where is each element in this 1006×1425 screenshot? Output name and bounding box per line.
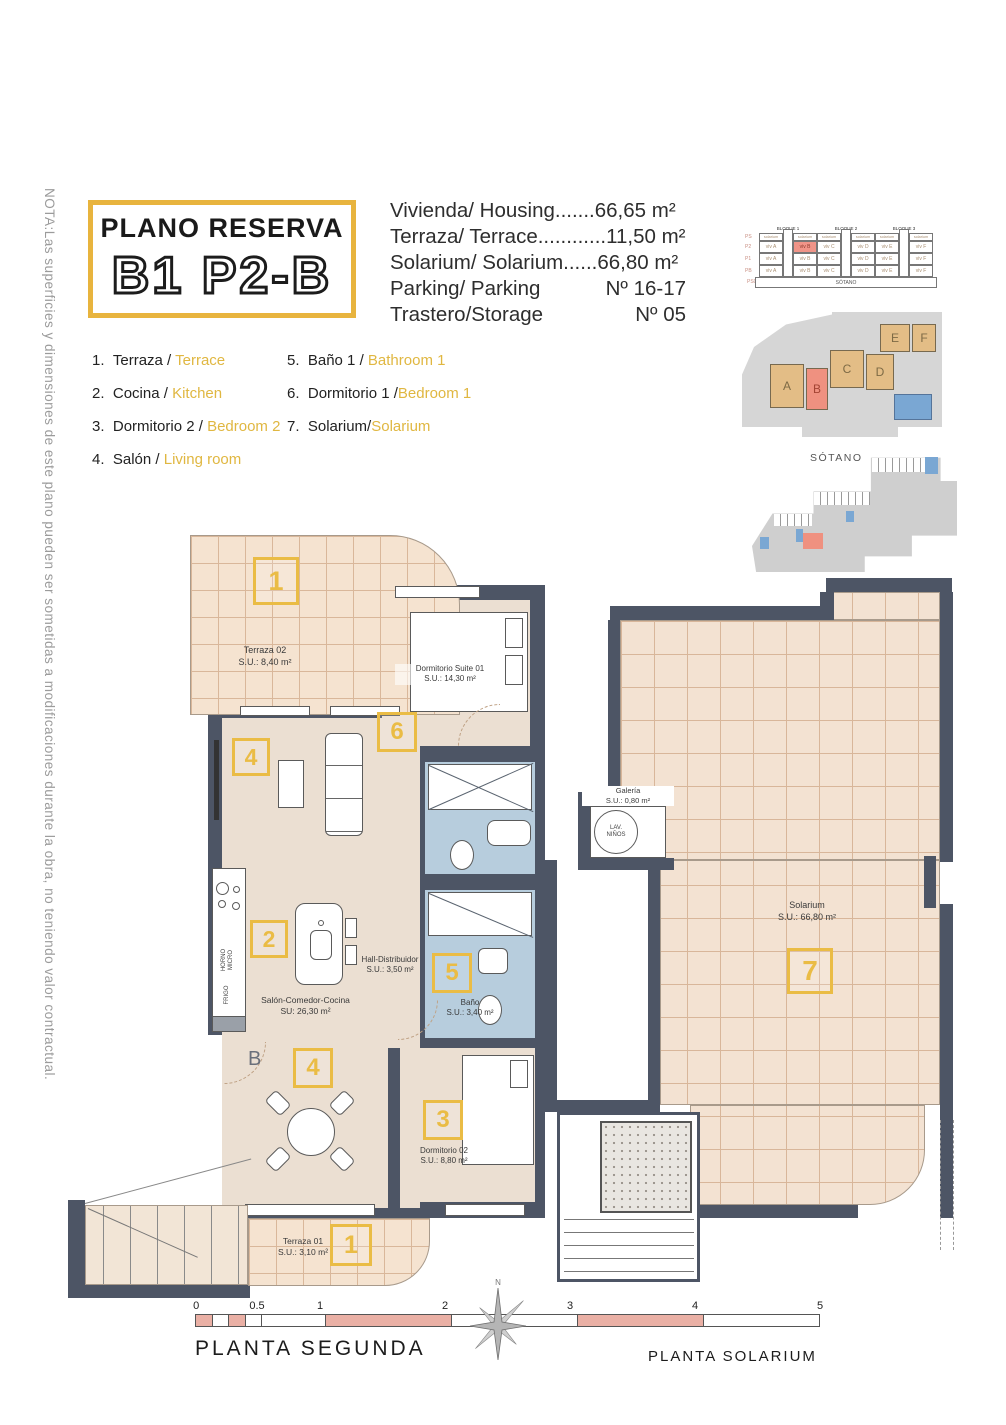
bathroom-sink <box>487 820 531 846</box>
wall <box>545 1100 660 1112</box>
floor-labels: PS P2 P1 PB <box>745 233 759 277</box>
window <box>445 1204 525 1216</box>
pillow <box>505 655 523 685</box>
legend-en: Bedroom 2 <box>207 418 280 435</box>
burner <box>218 900 226 908</box>
unit-column-b: solarium viv B viv B viv B <box>793 233 817 277</box>
section-cell: viv D <box>851 241 875 253</box>
bedroom2-label: Dormitorio 02S.U.: 8,80 m² <box>400 1146 488 1167</box>
building-a: A <box>770 364 804 408</box>
washer-label: LAV. <box>610 825 622 832</box>
title-block: PLANO RESERVA B1 P2-B <box>88 200 356 318</box>
dashed-boundary <box>940 1120 941 1250</box>
dashed-boundary <box>953 1120 954 1250</box>
room-area: S.U.: 3,40 m² <box>446 1008 493 1017</box>
spec-label: Solarium/ Solarium...... <box>390 250 597 276</box>
blue-spot <box>846 511 854 522</box>
spec-label: Vivienda/ Housing....... <box>390 198 595 224</box>
scale-segment <box>578 1315 704 1326</box>
tv-unit <box>214 740 219 820</box>
stair-tower <box>841 229 851 277</box>
wall <box>688 1205 858 1218</box>
room-number-kitchen: 2 <box>250 920 288 958</box>
section-cell: viv C <box>817 253 841 265</box>
door-leaf <box>924 856 936 908</box>
floor-label: P2 <box>745 241 759 253</box>
scale-tick: 1 <box>317 1300 323 1312</box>
legend-num: 2. <box>92 385 105 402</box>
sofa <box>325 733 363 836</box>
spec-label: Trastero/Storage <box>390 302 543 328</box>
stairwell <box>557 1112 700 1282</box>
solarium-plan-title: PLANTA SOLARIUM <box>648 1348 817 1365</box>
window <box>395 586 480 598</box>
legend-es: Cocina / <box>113 385 172 402</box>
solarium-label: SolariumS.U.: 66,80 m² <box>752 900 862 923</box>
shower-line <box>429 765 534 812</box>
unit-column-d: solarium viv D viv D viv D <box>851 233 875 277</box>
coffee-table <box>278 760 304 808</box>
section-cell: viv D <box>851 265 875 277</box>
room-area: S.U.: 3,50 m² <box>366 965 413 974</box>
section-cell: solarium <box>875 233 899 241</box>
room-name: Terraza 02 <box>244 645 287 655</box>
floor-label: PS <box>745 233 759 241</box>
scale-tick: 0.5 <box>249 1300 264 1312</box>
spec-value: 11,50 m² <box>606 224 685 250</box>
legend-en: Kitchen <box>172 385 222 402</box>
scale-segment <box>229 1315 246 1326</box>
entry-recess <box>196 1035 222 1205</box>
wall <box>388 1048 400 1208</box>
legend-en: Solarium <box>371 418 430 435</box>
burner <box>216 882 229 895</box>
wall <box>68 1200 85 1298</box>
room-name: Dormitorio Suite 01 <box>416 664 484 673</box>
unit-column-e: solarium viv E viv E viv E <box>875 233 899 277</box>
suite-label: Dormitorio Suite 01S.U.: 14,30 m² <box>395 664 505 685</box>
parking-row <box>814 492 870 505</box>
section-cell: viv D <box>851 253 875 265</box>
shower <box>428 764 532 810</box>
section-grid: PS P2 P1 PB solarium viv A viv A viv A s… <box>745 233 933 277</box>
oven-label: HORNO <box>221 949 227 971</box>
legend-num: 3. <box>92 418 105 435</box>
section-cell: viv B <box>793 253 817 265</box>
section-cell: viv E <box>875 241 899 253</box>
legend-item: 1. Terraza / Terrace <box>92 352 225 369</box>
legend-item: 3. Dormitorio 2 / Bedroom 2 <box>92 418 280 435</box>
plan2-title: PLANTA SEGUNDA <box>195 1337 426 1361</box>
room-area: S.U.: 0,80 m² <box>606 796 650 805</box>
bathroom-label: BañoS.U.: 3,40 m² <box>430 998 510 1019</box>
window <box>245 1204 375 1216</box>
room-name: Solarium <box>789 900 825 910</box>
section-cell: viv E <box>875 253 899 265</box>
building-b-highlighted: B <box>806 368 828 410</box>
section-cell: solarium <box>793 233 817 241</box>
scale-tick: 2 <box>442 1300 448 1312</box>
scale-tick: 5 <box>817 1300 823 1312</box>
legend-num: 1. <box>92 352 105 369</box>
legend-en: Living room <box>164 451 242 468</box>
basement-cell: SÓTANO <box>755 277 937 288</box>
section-cell-highlighted: viv B <box>793 241 817 253</box>
washing-machine: LAV. NIÑOS <box>594 810 638 854</box>
terrace01-label: Terraza 01S.U.: 3,10 m² <box>258 1236 348 1258</box>
legend-item: 4. Salón / Living room <box>92 451 241 468</box>
section-cell: viv B <box>793 265 817 277</box>
section-cell: viv F <box>909 265 933 277</box>
building-section-diagram: BLOQUE 1 BLOQUE 2 BLOQUE 3 PS P2 P1 PB s… <box>745 226 945 320</box>
stairs <box>564 1219 694 1278</box>
basement-plan: SÓTANO <box>752 442 957 572</box>
spec-value: 66,80 m² <box>597 250 678 276</box>
door-opening <box>940 862 953 904</box>
section-cell: viv A <box>759 253 783 265</box>
terrace02-label: Terraza 02S.U.: 8,40 m² <box>210 645 320 668</box>
legend-num: 6. <box>287 385 300 402</box>
wall <box>648 868 660 1112</box>
faucet <box>318 920 324 926</box>
shower-line <box>429 763 534 810</box>
room-area: S.U.: 66,80 m² <box>778 912 836 922</box>
section-cell: viv F <box>909 253 933 265</box>
micro-label: MICRO <box>228 950 234 970</box>
section-cell: solarium <box>759 233 783 241</box>
solarium-tiles <box>830 592 940 620</box>
room-area: SU: 26,30 m² <box>280 1006 330 1016</box>
basement-label: SÓTANO <box>810 452 863 464</box>
unit-column-c: solarium viv C viv C viv C <box>817 233 841 277</box>
dining-table <box>287 1108 335 1156</box>
section-cell: solarium <box>851 233 875 241</box>
wall <box>610 606 832 620</box>
legend-en: Bathroom 1 <box>368 352 446 369</box>
stair-tower <box>783 229 793 277</box>
floor-label: P1 <box>745 253 759 265</box>
legend-es: Dormitorio 1 / <box>308 385 398 402</box>
blue-spot <box>796 529 803 542</box>
room-number-bedroom2: 3 <box>423 1100 463 1140</box>
scale-segment <box>326 1315 452 1326</box>
scale-tick: 0 <box>193 1300 199 1312</box>
solarium-tiles <box>690 1105 925 1205</box>
bathroom-sink <box>478 948 508 974</box>
section-cell: solarium <box>817 233 841 241</box>
spec-label: Parking/ Parking <box>390 276 540 302</box>
solarium-tiles <box>620 620 940 860</box>
room-number-living: 4 <box>232 738 270 776</box>
section-cell: viv E <box>875 265 899 277</box>
blue-spot <box>925 457 938 474</box>
parking-row <box>774 514 812 526</box>
legend-es: Dormitorio 2 / <box>113 418 207 435</box>
scale-segment <box>196 1315 213 1326</box>
burner <box>232 902 240 910</box>
wall <box>68 1285 250 1298</box>
scale-segment <box>213 1315 230 1326</box>
scale-segment <box>262 1315 326 1326</box>
note-vertical-text: NOTA:Las superficies y dimensiones de es… <box>42 188 57 1198</box>
scale-segment <box>704 1315 819 1326</box>
legend-item: 7. Solarium/Solarium <box>287 418 430 435</box>
building-f: F <box>912 324 936 352</box>
plan-sheet: NOTA:Las superficies y dimensiones de es… <box>0 0 1006 1425</box>
burner <box>233 886 240 893</box>
legend-es: Baño 1 / <box>308 352 368 369</box>
section-cell: viv F <box>909 241 933 253</box>
room-name: Hall-Distribuidor <box>362 955 419 964</box>
room-name: Galería <box>616 786 641 795</box>
compass: N <box>468 1278 528 1364</box>
toilet <box>450 840 474 870</box>
site-plan: A B C D E F <box>742 312 942 437</box>
section-cell: viv C <box>817 265 841 277</box>
section-cell: solarium <box>909 233 933 241</box>
section-cell: viv A <box>759 265 783 277</box>
stool <box>345 918 357 938</box>
legend-es: Terraza / <box>113 352 175 369</box>
plan-title-line2: B1 P2-B <box>112 246 332 306</box>
specs-list: Vivienda/ Housing.......66,65 m² Terraza… <box>390 198 686 328</box>
pillow <box>510 1060 528 1088</box>
room-area: S.U.: 3,10 m² <box>278 1247 328 1257</box>
building-d: D <box>866 354 894 390</box>
scale-segment <box>246 1315 263 1326</box>
legend-num: 5. <box>287 352 300 369</box>
room-name: Terraza 01 <box>283 1236 323 1246</box>
elevator-shaft <box>600 1121 692 1213</box>
hall-label: Hall-DistribuidorS.U.: 3,50 m² <box>355 955 425 976</box>
legend-en: Terrace <box>175 352 225 369</box>
stair-tower <box>899 229 909 277</box>
legend-en: Bedroom 1 <box>398 385 471 402</box>
entry-letter: B <box>248 1048 261 1071</box>
legend-es: Solarium/ <box>308 418 371 435</box>
legend-item: 5. Baño 1 / Bathroom 1 <box>287 352 445 369</box>
legend-es: Salón / <box>113 451 164 468</box>
room-number-dining: 4 <box>293 1048 333 1088</box>
section-cell: viv A <box>759 241 783 253</box>
room-name: Baño <box>461 998 480 1007</box>
wall <box>940 592 953 1218</box>
building-c: C <box>830 350 864 388</box>
washer-label: NIÑOS <box>606 832 625 839</box>
plan-title-line1: PLANO RESERVA <box>100 213 343 244</box>
shower-line <box>429 893 533 938</box>
room-number-bath: 5 <box>432 953 472 993</box>
wall <box>578 804 590 866</box>
living-label: Salón-Comedor-CocinaSU: 26,30 m² <box>248 995 363 1017</box>
room-number-suite: 6 <box>377 712 417 752</box>
wall <box>545 860 557 1112</box>
spec-value: 66,65 m² <box>595 198 676 224</box>
window <box>240 706 310 716</box>
section-cell: viv C <box>817 241 841 253</box>
pillow <box>505 618 523 648</box>
room-name: Salón-Comedor-Cocina <box>261 995 350 1005</box>
fridge-label: FRIGO <box>224 973 234 1017</box>
unit-column-a: solarium viv A viv A viv A <box>759 233 783 277</box>
scale-tick: 4 <box>692 1300 698 1312</box>
room-area: S.U.: 8,80 m² <box>420 1156 467 1165</box>
unit-column-f: solarium viv F viv F viv F <box>909 233 933 277</box>
room-area: S.U.: 8,40 m² <box>238 657 291 667</box>
room-number-solarium: 7 <box>787 948 833 994</box>
sink <box>310 930 332 960</box>
room-number-terrace02: 1 <box>253 557 299 605</box>
room-area: S.U.: 14,30 m² <box>424 674 476 683</box>
floor-label: PB <box>745 265 759 277</box>
room-name: Dormitorio 02 <box>420 1146 468 1155</box>
legend-num: 4. <box>92 451 105 468</box>
pool <box>894 394 932 420</box>
shower <box>428 892 532 936</box>
scale-tick: 3 <box>567 1300 573 1312</box>
blue-spot <box>760 537 769 549</box>
spec-label: Terraza/ Terrace............ <box>390 224 606 250</box>
spec-value: Nº 05 <box>635 302 686 328</box>
legend-item: 6. Dormitorio 1 /Bedroom 1 <box>287 385 471 402</box>
counter-end <box>212 1016 246 1032</box>
compass-rose-icon <box>468 1286 528 1362</box>
spec-value: Nº 16-17 <box>606 276 686 302</box>
wall <box>608 620 620 800</box>
wall <box>826 578 952 592</box>
galeria-label: GaleríaS.U.: 0,80 m² <box>582 786 674 806</box>
legend-item: 2. Cocina / Kitchen <box>92 385 222 402</box>
legend-num: 7. <box>287 418 300 435</box>
parking-spot-highlighted <box>803 533 823 549</box>
building-e: E <box>880 324 910 352</box>
